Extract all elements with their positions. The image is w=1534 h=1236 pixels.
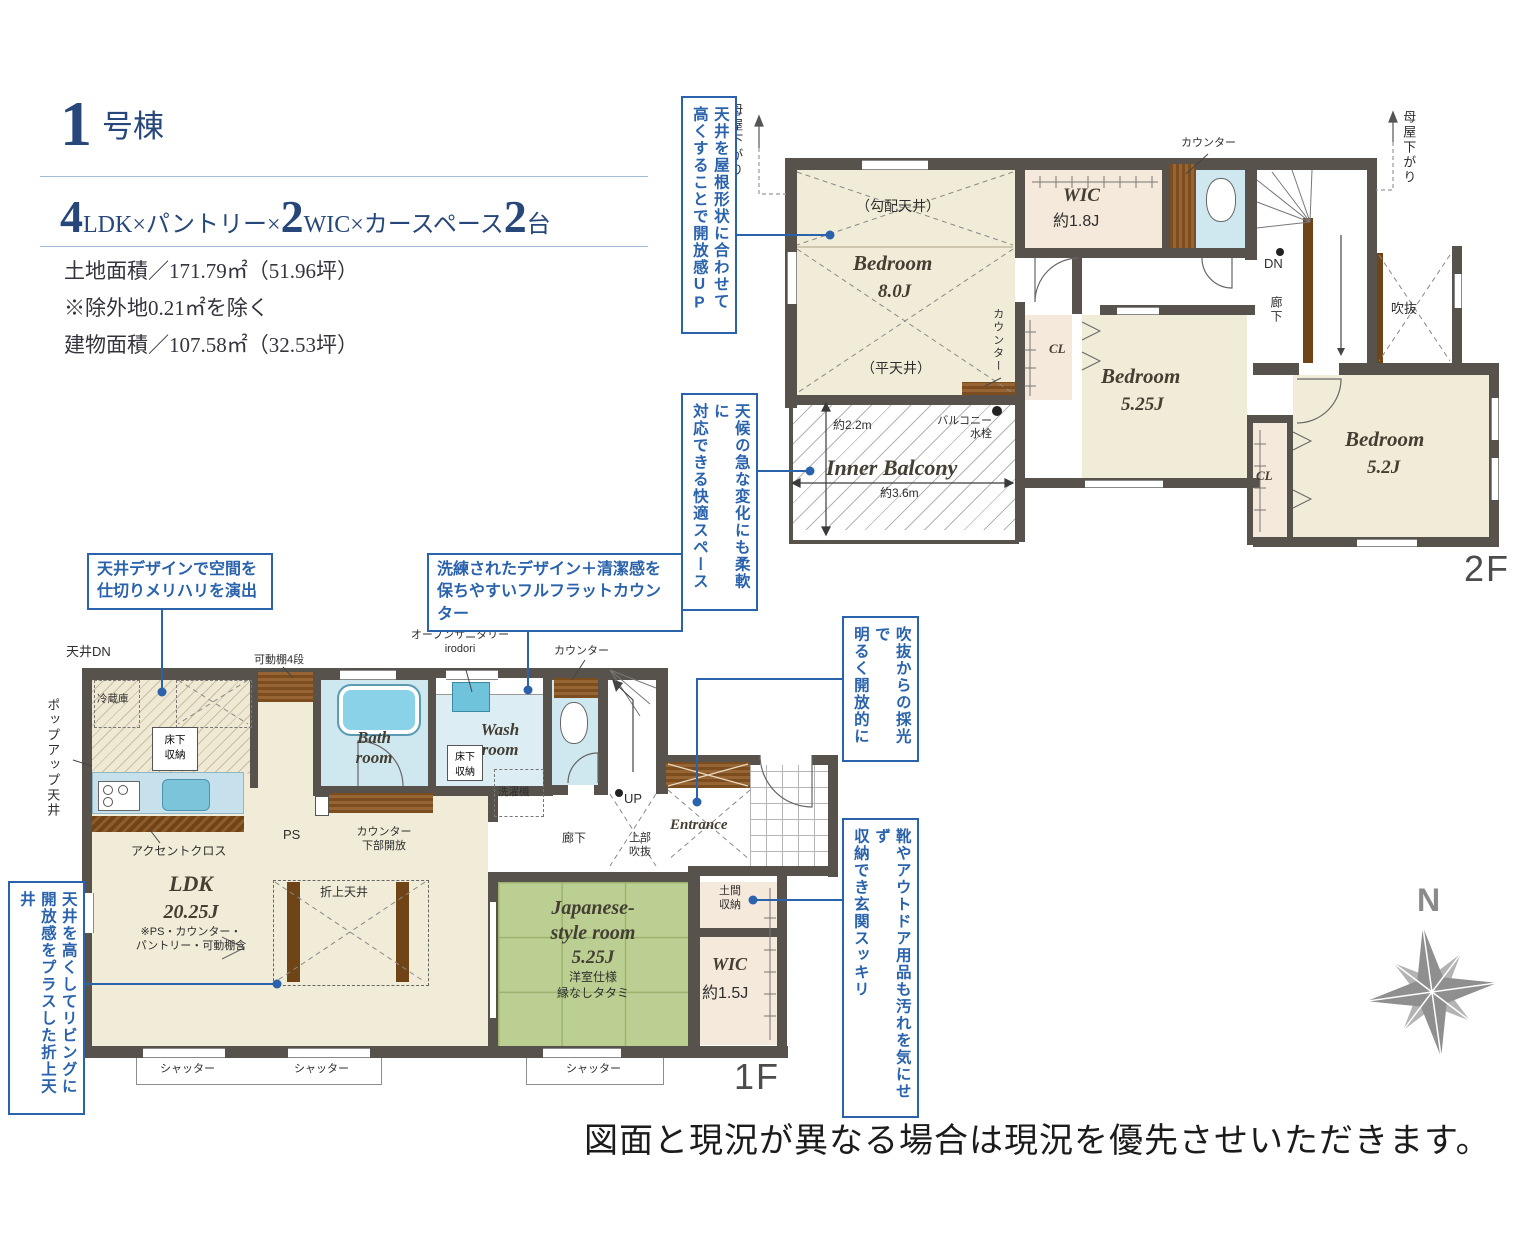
spec-text-3: 台	[527, 212, 551, 238]
spec-num-2: 2	[281, 191, 304, 242]
ldk-labels: LDK 20.25J ※PS・カウンター・ パントリー・可動棚含	[106, 870, 276, 953]
room-size: 5.25J	[1121, 393, 1164, 417]
callout-line: 保ちやすいフルフラットカウンター	[437, 581, 673, 626]
window	[1491, 398, 1499, 440]
disclaimer: 図面と現況が異なる場合は現況を優先させいただきます。	[584, 1120, 1491, 1163]
jp-line: style room	[551, 922, 636, 944]
callout-line: 天候の急な変化にも柔軟に	[709, 403, 751, 601]
callout-line: 対応できる快適スペース	[688, 403, 709, 601]
building-area: 建物面積／107.58㎡（32.53坪）	[64, 332, 358, 358]
entrance-porch	[750, 755, 828, 867]
callout-line: 開放感をプラスした折上天井	[15, 891, 57, 1105]
callout-line: 洗練されたデザイン＋清潔感を	[437, 559, 673, 581]
callout-line: 天井を高くしてリビングに	[57, 891, 78, 1105]
window	[446, 670, 498, 680]
callout-ceiling-design: 天井デザインで空間を 仕切りメリハリを演出	[87, 553, 273, 610]
building-number-suffix: 号棟	[102, 108, 164, 147]
entrance-closet	[666, 762, 750, 788]
sanitary-line: irodori	[445, 643, 476, 655]
faucet-line: 水栓	[970, 428, 992, 440]
underfloor-label: 収納	[165, 749, 186, 761]
divider	[40, 246, 648, 247]
wall	[785, 395, 1025, 405]
bedroom-525j	[1082, 315, 1247, 478]
toilet-bowl-1f	[560, 702, 588, 744]
jp-line: Japanese-	[551, 897, 634, 919]
shutter-label: シャッター	[566, 1063, 621, 1077]
wall	[688, 872, 700, 1056]
ldk-line: 20.25J	[164, 901, 219, 923]
sliding-door	[490, 902, 496, 1018]
wall	[1162, 164, 1170, 252]
callout-doma-storage: 靴やアウトドア用品も汚れを気にせず 収納でき玄関スッキリ	[842, 818, 919, 1118]
underfloor-label: 収納	[455, 767, 475, 778]
wash-line: room	[482, 740, 519, 759]
room-size: 8.0J	[878, 280, 911, 304]
counter-open-line: 下部開放	[362, 840, 406, 852]
wall	[1015, 248, 1255, 258]
open-counter-label: カウンター下部開放	[330, 826, 438, 854]
wash-line: Wash	[481, 720, 519, 739]
spec-text-2: WIC×カースペース	[304, 212, 504, 238]
dimension-label: 約3.6m	[880, 486, 919, 501]
callout-balcony: 天候の急な変化にも柔軟に 対応できる快適スペース	[681, 393, 758, 611]
spec-num-1: 4	[60, 191, 83, 242]
pantry-shelf	[258, 672, 313, 702]
doma-line: 土間	[719, 885, 741, 897]
wall	[488, 872, 698, 882]
window	[787, 252, 797, 304]
sanitary-label: オープンサニタリーirodori	[398, 629, 522, 657]
underfloor-label: 床下	[165, 734, 186, 746]
balcony-faucet-label: バルコニー水栓	[920, 415, 992, 441]
balcony-parapet	[789, 540, 1019, 544]
popup-ceiling-label: ポップアップ天井	[44, 698, 60, 818]
door-gap	[568, 785, 594, 795]
wall	[1287, 415, 1293, 545]
callout-line: 天井デザインで空間を	[97, 559, 263, 581]
wall	[1247, 415, 1253, 545]
fridge-label: 冷蔵庫	[97, 693, 129, 706]
window	[543, 1048, 621, 1058]
window	[288, 1048, 370, 1058]
window	[862, 160, 928, 170]
wall	[543, 668, 552, 788]
void-rail	[1377, 253, 1383, 363]
wall	[428, 668, 436, 788]
upper-void-label: 上部吹抜	[616, 832, 664, 860]
stair-rail	[1303, 218, 1313, 364]
void-line: 上部	[629, 832, 651, 844]
building-number: 1	[60, 84, 92, 164]
jp-line: 縁なしタタミ	[557, 986, 629, 1000]
divider	[40, 176, 648, 177]
callout-line: 高くすることで開放感UP	[688, 106, 709, 324]
door-gap	[760, 755, 812, 765]
callout-flat-counter: 洗練されたデザイン＋清潔感を 保ちやすいフルフラットカウンター	[427, 553, 683, 632]
window	[1454, 274, 1462, 308]
faucet-line: バルコニー	[937, 415, 992, 427]
wall	[313, 668, 321, 788]
sloped-ceiling-label: （勾配天井）	[856, 198, 940, 216]
ldk-line: パントリー・可動棚含	[136, 940, 247, 952]
bedroom8-counter	[962, 382, 1015, 395]
counter-2f	[1170, 164, 1196, 248]
counter-label: カウンター	[990, 308, 1004, 373]
room-size: 5.2J	[1367, 456, 1400, 480]
underfloor-storage: 床下収納	[152, 727, 198, 771]
dimension-label: 約2.2m	[833, 418, 872, 433]
stairs-up-label: UP	[624, 791, 642, 807]
balcony-parapet	[789, 400, 793, 544]
land-area: 土地面積／171.79㎡（51.96坪）	[64, 258, 358, 284]
accent-cloth-label: アクセントクロス	[131, 844, 226, 859]
open-counter	[329, 793, 433, 813]
shelf-label: 可動棚4段	[254, 654, 304, 668]
spec-text-1: LDK×パントリー×	[83, 212, 281, 238]
door-gap	[1015, 258, 1025, 302]
room-name: Bathroom	[330, 728, 418, 769]
eave-label: 母屋下がり	[1400, 110, 1416, 185]
toilet-counter-1f	[554, 678, 598, 698]
plan-spec: 4LDK×パントリー×2WIC×カースペース2台	[60, 188, 551, 246]
callout-line: 天井を屋根形状に合わせて	[709, 106, 730, 324]
closet-cl1	[1025, 315, 1072, 400]
coffered-ceiling-label: 折上天井	[320, 885, 368, 900]
balcony-name: Inner Balcony	[826, 454, 957, 482]
wall	[598, 668, 608, 788]
callout-coffered-ceiling: 天井を高くしてリビングに 開放感をプラスした折上天井	[8, 881, 85, 1115]
ceiling-down-label: 天井DN	[66, 644, 111, 660]
callout-line: 収納でき玄関スッキリ	[849, 828, 870, 1108]
stairs-down-label: DN	[1264, 256, 1283, 272]
burner	[118, 785, 128, 795]
void-line: 吹抜	[629, 846, 651, 858]
flat-ceiling-label: （平天井）	[861, 360, 931, 378]
callout-line: 仕切りメリハリを演出	[97, 581, 263, 603]
counter-label: カウンター	[554, 645, 609, 659]
room-name: Washroom	[460, 720, 540, 761]
room-name: Bedroom	[853, 250, 932, 276]
washer-label: 洗濯機	[498, 786, 530, 799]
room-name: Entrance	[670, 816, 728, 835]
doma-label: 土間収納	[704, 885, 756, 913]
burner	[103, 785, 113, 795]
room-size: 約1.5J	[702, 984, 748, 1004]
room-size: 約1.8J	[1053, 212, 1099, 232]
pantry-box	[176, 680, 252, 728]
wall	[1072, 252, 1082, 314]
ps-shaft	[315, 796, 329, 816]
callout-line: 明るく開放的に	[849, 626, 870, 752]
wall	[1245, 158, 1257, 260]
shutter-label: シャッター	[294, 1063, 349, 1077]
window	[1085, 480, 1163, 488]
hallway-label: 廊下	[562, 831, 586, 846]
floor-label-2f: 2F	[1464, 548, 1510, 590]
callout-roof-ceiling: 天井を屋根形状に合わせて 高くすることで開放感UP	[681, 96, 737, 334]
callout-line: 靴やアウトドア用品も汚れを気にせず	[870, 828, 912, 1108]
door-gap	[1299, 363, 1339, 375]
wall	[700, 928, 777, 937]
window	[1491, 458, 1499, 500]
ps-label: PS	[283, 827, 300, 843]
ldk-line: ※PS・カウンター・	[141, 926, 242, 938]
counter-open-line: カウンター	[357, 826, 412, 838]
wall	[777, 876, 787, 1056]
window	[340, 670, 396, 680]
jp-line: 5.25J	[572, 947, 615, 968]
room-name: Bedroom	[1101, 363, 1180, 389]
toilet-bowl-2f	[1206, 178, 1236, 222]
land-area-note: ※除外地0.21㎡を除く	[64, 295, 269, 321]
kitchen-sink	[162, 779, 210, 811]
burner	[103, 797, 113, 807]
callout-line: 吹抜からの採光で	[870, 626, 912, 752]
room-name: Bedroom	[1345, 426, 1424, 452]
compass-rose	[1357, 917, 1506, 1066]
bath-line: Bath	[357, 728, 391, 747]
callout-void-light: 吹抜からの採光で 明るく開放的に	[842, 616, 919, 762]
void-label: 吹抜	[1391, 301, 1417, 317]
jp-line: 洋室仕様	[569, 970, 617, 984]
window	[1117, 307, 1159, 315]
wall	[1489, 363, 1499, 547]
room-name: WIC	[712, 953, 747, 976]
compass-north-label: N	[1417, 880, 1440, 920]
bath-line: room	[356, 748, 393, 767]
wall	[828, 755, 838, 877]
doma-line: 収納	[719, 899, 741, 911]
window	[84, 893, 94, 933]
wall	[1367, 158, 1377, 365]
wall	[1253, 363, 1497, 375]
wall	[688, 866, 838, 876]
closet-label: CL	[1256, 468, 1273, 484]
stairs-run-2f	[1313, 262, 1367, 363]
room-name: WIC	[1063, 184, 1100, 208]
floorplan-sheet: 1 号棟 4LDK×パントリー×2WIC×カースペース2台 土地面積／171.7…	[0, 0, 1534, 1236]
spec-num-3: 2	[504, 191, 527, 242]
ldk-line: LDK	[169, 871, 213, 896]
accent-cloth	[92, 816, 244, 832]
hallway-label: 廊下	[1268, 296, 1283, 324]
stairs-1f	[608, 668, 656, 792]
closet-label: CL	[1049, 341, 1066, 357]
japanese-room-labels: Japanese- style room 5.25J 洋室仕様 縁なしタタミ	[500, 896, 686, 1001]
counter-label: カウンター	[1181, 137, 1236, 151]
window	[1357, 539, 1417, 547]
window	[143, 1048, 225, 1058]
shutter-label: シャッター	[160, 1063, 215, 1077]
floor-label-1f: 1F	[734, 1056, 780, 1098]
wash-sink	[452, 682, 490, 712]
